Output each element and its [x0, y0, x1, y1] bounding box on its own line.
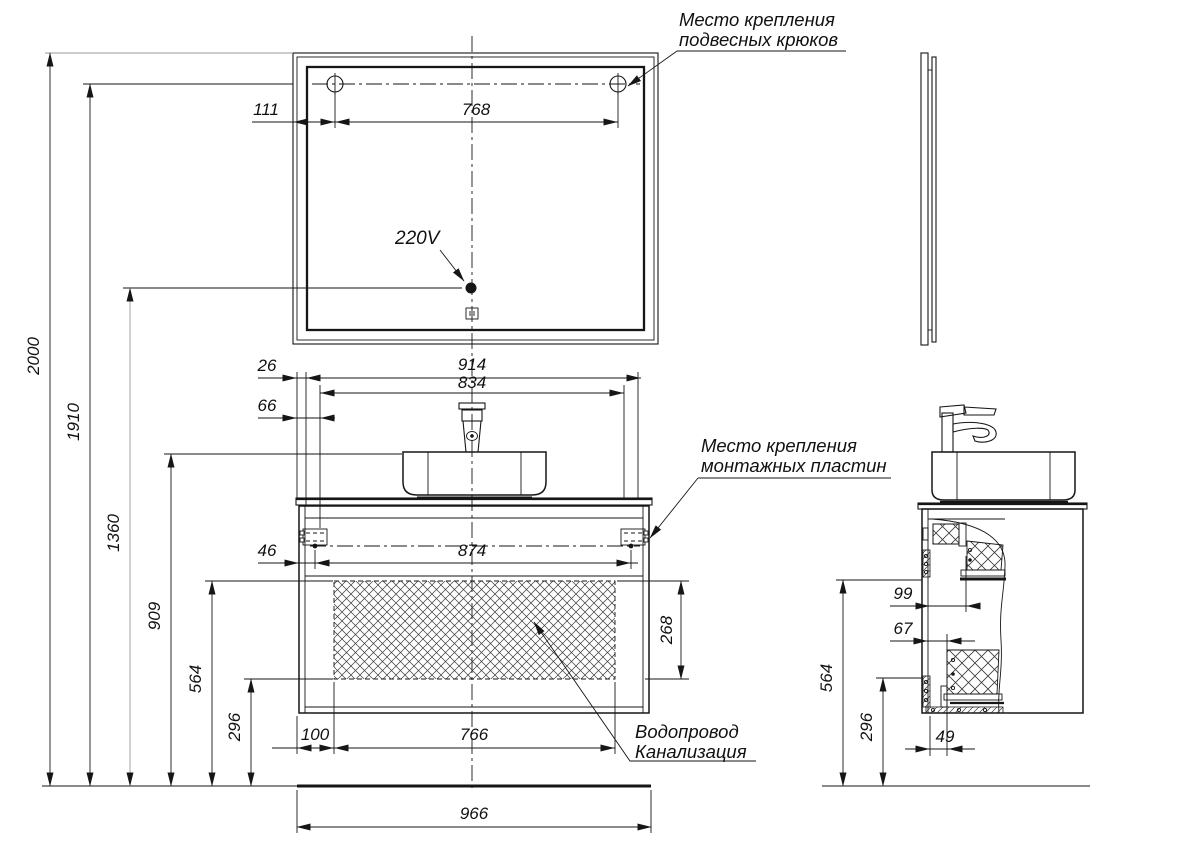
dim-hatch-height: 268	[617, 581, 689, 679]
wall-strip-lower	[923, 676, 930, 707]
leader-hooks	[628, 51, 677, 86]
washbasin-side	[932, 452, 1075, 502]
dim-text-side-564: 564	[817, 664, 836, 692]
utilities-zone-hatch	[334, 581, 615, 679]
dim-text-26: 26	[257, 356, 277, 375]
label-hooks: Место крепления подвесных крюков	[628, 9, 846, 86]
dim-overall-width: 966	[297, 790, 651, 833]
vanity-cabinet-front	[299, 506, 649, 713]
dim-text-834: 834	[458, 373, 486, 392]
label-plates-line1: Место крепления	[701, 435, 857, 456]
dim-text-side-296: 296	[857, 712, 876, 742]
wall-strip-upper	[923, 550, 930, 577]
mirror-front	[293, 53, 658, 344]
label-water-line1: Водопровод	[635, 721, 739, 742]
dim-side-564: 564	[817, 580, 922, 786]
label-voltage: 220V	[394, 228, 478, 319]
dim-top-widths: 26 914 834 66	[257, 355, 641, 528]
dim-side-296: 296	[857, 678, 922, 786]
dim-text-side-49: 49	[936, 727, 955, 746]
dim-bottom-widths: 100 766	[272, 682, 615, 754]
dim-text-874: 874	[458, 541, 486, 560]
faucet-side	[940, 405, 996, 452]
technical-drawing: 111 768 Место крепления подвесных крюков…	[0, 0, 1200, 848]
dim-text-side-99: 99	[894, 584, 913, 603]
mirror-side-view	[921, 53, 936, 345]
mounting-plate-right	[621, 529, 648, 548]
dim-text-564: 564	[186, 665, 205, 693]
drawing-canvas: 111 768 Место крепления подвесных крюков…	[0, 0, 1200, 848]
dim-text-111: 111	[253, 100, 279, 119]
dim-text-766: 766	[460, 725, 489, 744]
power-point-dot	[466, 283, 477, 294]
mounting-plate-left	[300, 529, 327, 548]
dim-text-100: 100	[301, 725, 330, 744]
dim-text-914: 914	[458, 355, 486, 374]
dim-text-768: 768	[462, 100, 491, 119]
dim-text-1910: 1910	[64, 403, 83, 441]
dim-text-268: 268	[657, 615, 676, 645]
countertop-front	[296, 498, 652, 505]
dim-height-1360: 1360	[104, 288, 462, 786]
countertop-side	[918, 503, 1087, 509]
voltage-text: 220V	[394, 228, 442, 249]
dim-text-909: 909	[145, 601, 164, 630]
dim-text-46: 46	[258, 541, 277, 560]
label-plates: Место крепления монтажных пластин	[650, 435, 891, 538]
leader-voltage	[440, 250, 464, 281]
label-water-line2: Канализация	[635, 741, 747, 762]
lower-mounting-hardware	[926, 650, 1004, 713]
label-hooks-line1: Место крепления	[679, 9, 835, 30]
dim-text-side-67: 67	[894, 619, 913, 638]
label-hooks-line2: подвесных крюков	[679, 29, 838, 50]
label-plates-line2: монтажных пластин	[701, 455, 887, 476]
upper-mounting-hardware	[923, 523, 1006, 579]
dim-text-966: 966	[460, 804, 489, 823]
dim-side-49: 49	[905, 716, 975, 756]
dim-side-99: 99	[890, 556, 980, 612]
dim-text-1360: 1360	[104, 514, 123, 552]
washbasin-front	[403, 452, 546, 498]
vanity-side-view	[918, 405, 1087, 713]
dim-text-2000: 2000	[24, 337, 43, 376]
leader-plates	[650, 478, 698, 538]
dim-height-564: 564	[186, 581, 333, 786]
mirror-outer-frame	[293, 53, 658, 344]
dim-text-296: 296	[225, 712, 244, 742]
dim-height-1910: 1910	[64, 84, 293, 786]
dim-text-66: 66	[258, 396, 277, 415]
